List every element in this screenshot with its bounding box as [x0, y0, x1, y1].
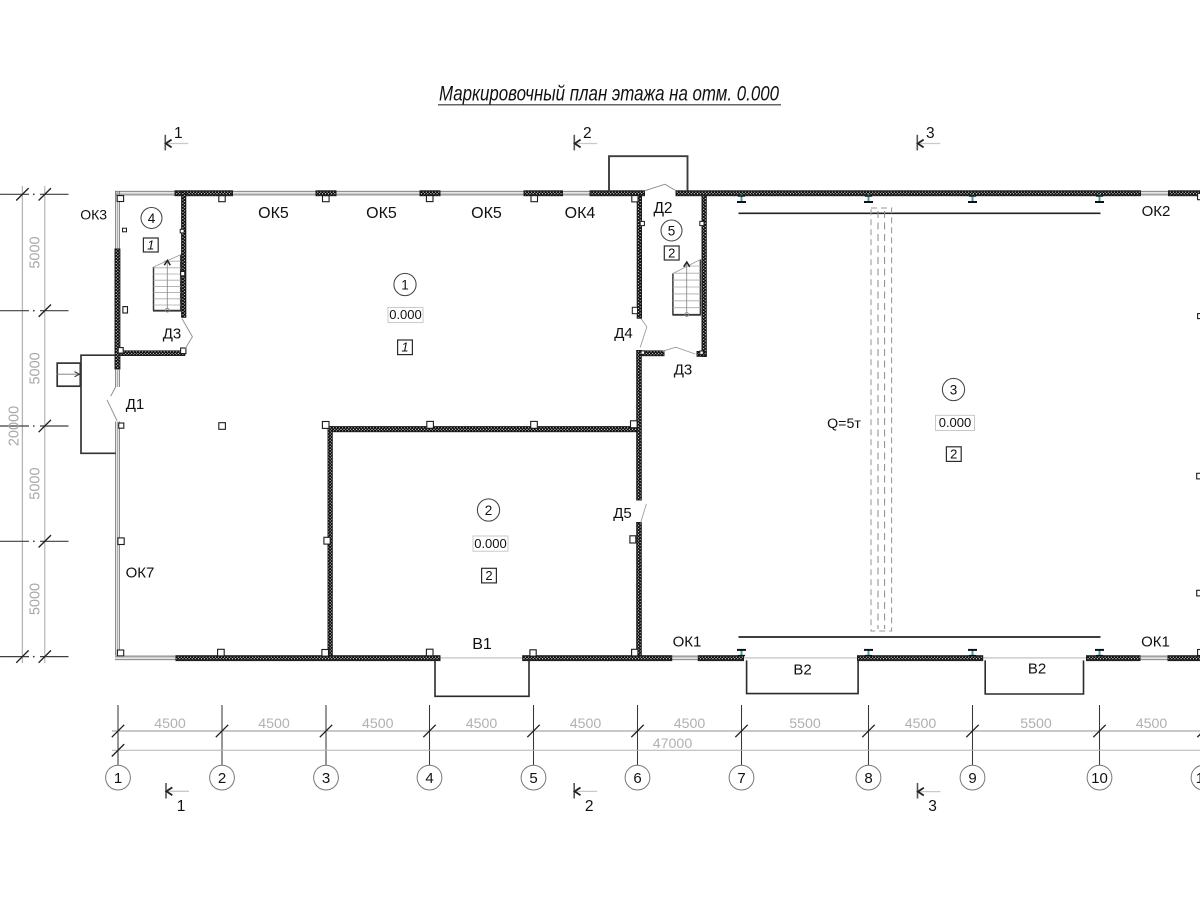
- svg-text:ОК4: ОК4: [565, 205, 596, 222]
- svg-text:В2: В2: [793, 662, 811, 679]
- svg-text:3: 3: [950, 382, 958, 397]
- svg-text:5500: 5500: [1020, 716, 1052, 732]
- svg-text:5000: 5000: [28, 583, 44, 615]
- svg-text:2: 2: [583, 125, 592, 142]
- svg-text:Д3: Д3: [674, 362, 693, 379]
- svg-text:6: 6: [633, 770, 641, 787]
- svg-text:0.000: 0.000: [389, 307, 422, 322]
- svg-text:0.000: 0.000: [939, 415, 972, 430]
- svg-text:Маркировочный план этажа на от: Маркировочный план этажа на отм. 0.000: [439, 82, 779, 106]
- svg-text:0.000: 0.000: [474, 536, 507, 551]
- svg-text:3: 3: [926, 125, 935, 142]
- svg-text:Д5: Д5: [613, 505, 632, 522]
- svg-text:2: 2: [585, 798, 594, 815]
- svg-text:ОК7: ОК7: [126, 565, 155, 582]
- svg-text:3: 3: [322, 770, 330, 787]
- svg-text:3: 3: [928, 798, 937, 815]
- svg-text:2: 2: [218, 770, 226, 787]
- svg-text:4500: 4500: [154, 716, 186, 732]
- svg-text:ОК5: ОК5: [258, 205, 289, 222]
- svg-text:Q=5т: Q=5т: [827, 416, 861, 432]
- svg-text:2: 2: [485, 568, 492, 583]
- svg-text:4500: 4500: [570, 716, 602, 732]
- svg-text:Д3: Д3: [163, 326, 182, 343]
- svg-text:1: 1: [174, 125, 183, 142]
- svg-text:5: 5: [668, 223, 676, 238]
- svg-text:4500: 4500: [905, 716, 937, 732]
- svg-text:1: 1: [147, 238, 154, 253]
- svg-text:9: 9: [968, 770, 976, 787]
- svg-text:1: 1: [177, 798, 186, 815]
- svg-text:5: 5: [529, 770, 537, 787]
- svg-text:5000: 5000: [28, 352, 44, 384]
- svg-text:Д4: Д4: [614, 325, 633, 342]
- svg-text:5500: 5500: [789, 716, 821, 732]
- svg-text:11: 11: [1196, 770, 1200, 787]
- svg-text:ОК5: ОК5: [366, 205, 397, 222]
- svg-text:1: 1: [401, 340, 408, 355]
- svg-text:Д1: Д1: [126, 396, 145, 413]
- svg-text:2: 2: [485, 503, 493, 518]
- svg-text:47000: 47000: [653, 736, 693, 752]
- svg-text:4500: 4500: [1136, 716, 1168, 732]
- svg-text:В1: В1: [472, 636, 492, 653]
- svg-text:8: 8: [864, 770, 872, 787]
- svg-text:ОК3: ОК3: [80, 207, 107, 223]
- svg-text:4500: 4500: [674, 716, 706, 732]
- svg-text:4: 4: [148, 211, 156, 226]
- svg-text:ОК2: ОК2: [1142, 203, 1171, 220]
- svg-text:2: 2: [668, 246, 675, 261]
- svg-text:1: 1: [401, 277, 409, 292]
- svg-text:2: 2: [950, 446, 957, 461]
- svg-text:ОК1: ОК1: [1141, 634, 1170, 651]
- svg-text:4500: 4500: [258, 716, 290, 732]
- svg-text:ОК5: ОК5: [471, 205, 502, 222]
- svg-text:4500: 4500: [466, 716, 498, 732]
- svg-text:В2: В2: [1028, 661, 1046, 678]
- svg-text:20000: 20000: [7, 406, 23, 446]
- svg-text:4500: 4500: [362, 716, 394, 732]
- svg-text:4: 4: [425, 770, 433, 787]
- svg-text:7: 7: [737, 770, 745, 787]
- svg-text:ОК1: ОК1: [673, 634, 702, 651]
- svg-text:10: 10: [1091, 770, 1108, 787]
- svg-text:5000: 5000: [28, 236, 44, 268]
- svg-text:Д2: Д2: [653, 200, 672, 217]
- svg-text:5000: 5000: [28, 467, 44, 499]
- svg-text:1: 1: [114, 770, 122, 787]
